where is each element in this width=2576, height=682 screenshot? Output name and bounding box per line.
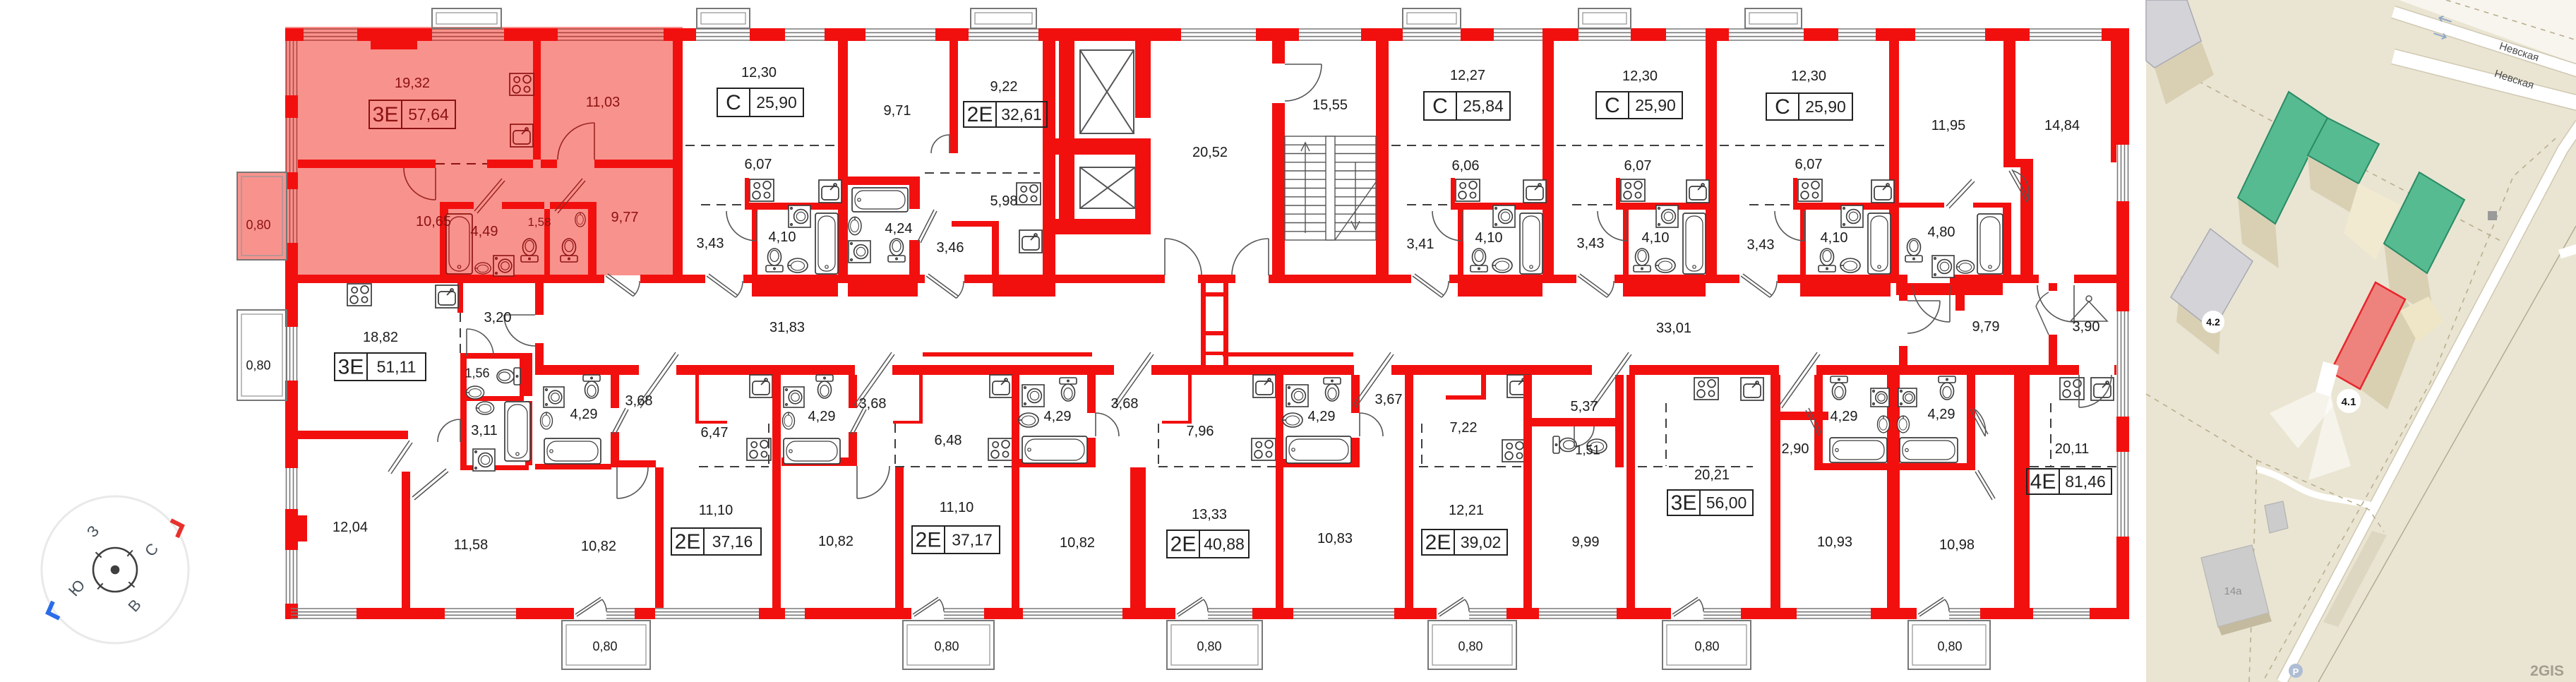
svg-text:4,29: 4,29: [1831, 409, 1858, 424]
svg-text:10,93: 10,93: [1817, 534, 1852, 550]
svg-text:56,00: 56,00: [1706, 493, 1747, 512]
svg-text:10,82: 10,82: [818, 534, 853, 549]
svg-text:20,52: 20,52: [1192, 145, 1228, 160]
svg-text:12,27: 12,27: [1450, 68, 1485, 83]
svg-text:5,98: 5,98: [990, 193, 1018, 209]
svg-text:4,49: 4,49: [471, 224, 498, 239]
svg-text:4,29: 4,29: [1308, 409, 1336, 424]
svg-text:0,80: 0,80: [1197, 639, 1221, 653]
svg-text:37,17: 37,17: [952, 531, 993, 549]
svg-text:18,82: 18,82: [363, 330, 398, 345]
svg-text:5,37: 5,37: [1571, 399, 1598, 414]
svg-text:39,02: 39,02: [1461, 533, 1502, 551]
svg-text:1,58: 1,58: [527, 215, 551, 229]
svg-text:11,58: 11,58: [454, 537, 489, 553]
svg-text:14,84: 14,84: [2044, 118, 2080, 133]
svg-text:С: С: [726, 91, 741, 114]
svg-text:0,80: 0,80: [592, 639, 617, 653]
svg-text:3,67: 3,67: [1375, 392, 1403, 407]
svg-text:9,99: 9,99: [1572, 534, 1600, 550]
svg-text:6,07: 6,07: [1795, 157, 1823, 172]
svg-text:25,90: 25,90: [1635, 96, 1676, 114]
svg-text:2Е: 2Е: [1425, 531, 1451, 554]
svg-text:3,90: 3,90: [2073, 319, 2100, 335]
svg-text:15,55: 15,55: [1312, 97, 1348, 113]
svg-text:20,11: 20,11: [2055, 441, 2090, 457]
svg-text:10,65: 10,65: [416, 214, 451, 229]
svg-text:3Е: 3Е: [338, 356, 364, 379]
svg-text:40,88: 40,88: [1204, 535, 1245, 554]
svg-text:С: С: [1775, 95, 1790, 119]
svg-text:4,29: 4,29: [570, 407, 598, 422]
svg-text:10,98: 10,98: [1939, 537, 1975, 553]
svg-text:4,80: 4,80: [1928, 225, 1955, 240]
svg-text:3Е: 3Е: [1671, 491, 1697, 515]
svg-text:19,32: 19,32: [395, 76, 430, 91]
svg-text:3,68: 3,68: [625, 393, 653, 409]
svg-text:3Е: 3Е: [373, 103, 399, 126]
svg-text:9,77: 9,77: [611, 210, 639, 225]
svg-text:С: С: [1605, 94, 1620, 117]
svg-text:1,51: 1,51: [1575, 443, 1600, 457]
svg-text:2Е: 2Е: [675, 530, 701, 554]
svg-text:0,80: 0,80: [1937, 639, 1962, 653]
svg-text:14а: 14а: [2224, 585, 2242, 597]
svg-text:0,80: 0,80: [1458, 639, 1482, 653]
svg-text:2GIS: 2GIS: [2530, 663, 2564, 679]
svg-text:4,10: 4,10: [769, 229, 796, 245]
svg-text:51,11: 51,11: [377, 358, 417, 376]
svg-text:4,29: 4,29: [1044, 409, 1072, 424]
svg-text:4.1: 4.1: [2342, 396, 2356, 408]
svg-text:3,68: 3,68: [859, 396, 887, 412]
svg-text:2Е: 2Е: [1170, 533, 1197, 556]
svg-text:P: P: [2293, 666, 2299, 677]
svg-text:6,07: 6,07: [1624, 158, 1652, 174]
svg-text:37,16: 37,16: [712, 532, 753, 551]
svg-text:2Е: 2Е: [967, 103, 993, 126]
svg-text:6,06: 6,06: [1452, 158, 1480, 174]
svg-text:4,10: 4,10: [1475, 230, 1503, 246]
svg-text:4.2: 4.2: [2206, 316, 2220, 328]
svg-text:57,64: 57,64: [408, 105, 449, 124]
svg-text:9,22: 9,22: [990, 79, 1018, 95]
svg-text:1,56: 1,56: [465, 366, 489, 380]
svg-text:4,24: 4,24: [885, 221, 913, 237]
svg-text:11,10: 11,10: [699, 503, 733, 518]
svg-text:10,83: 10,83: [1317, 531, 1353, 546]
svg-text:4,29: 4,29: [808, 409, 836, 424]
svg-text:6,47: 6,47: [701, 425, 729, 441]
svg-text:32,61: 32,61: [1001, 105, 1042, 124]
svg-text:20,21: 20,21: [1694, 467, 1730, 483]
svg-text:12,30: 12,30: [741, 65, 777, 80]
svg-text:81,46: 81,46: [2065, 472, 2106, 491]
svg-text:7,96: 7,96: [1187, 424, 1214, 439]
svg-text:0,80: 0,80: [934, 639, 959, 653]
svg-text:10,82: 10,82: [581, 539, 616, 554]
svg-text:12,30: 12,30: [1791, 68, 1826, 84]
svg-text:25,84: 25,84: [1463, 97, 1504, 115]
svg-text:3,43: 3,43: [697, 236, 724, 251]
svg-text:31,83: 31,83: [769, 320, 805, 335]
svg-text:4,10: 4,10: [1821, 230, 1848, 246]
svg-text:25,90: 25,90: [756, 93, 797, 112]
svg-text:6,07: 6,07: [745, 157, 772, 172]
svg-text:6,48: 6,48: [935, 433, 962, 448]
svg-text:С: С: [1432, 95, 1448, 118]
svg-text:4,29: 4,29: [1928, 407, 1955, 422]
svg-text:11,10: 11,10: [940, 500, 974, 515]
svg-text:9,71: 9,71: [884, 103, 911, 119]
svg-text:12,21: 12,21: [1449, 503, 1484, 518]
svg-text:3,41: 3,41: [1407, 237, 1434, 252]
svg-text:3,20: 3,20: [484, 310, 512, 325]
svg-text:7,22: 7,22: [1450, 420, 1478, 436]
svg-text:2Е: 2Е: [916, 529, 942, 552]
svg-text:25,90: 25,90: [1805, 97, 1846, 116]
svg-text:3,68: 3,68: [1111, 396, 1139, 412]
svg-text:0,80: 0,80: [246, 217, 270, 232]
svg-text:2,90: 2,90: [1782, 441, 1809, 457]
svg-text:0,80: 0,80: [1694, 639, 1719, 653]
svg-text:3,43: 3,43: [1577, 236, 1605, 251]
svg-text:33,01: 33,01: [1656, 321, 1691, 336]
svg-text:12,30: 12,30: [1622, 68, 1658, 84]
svg-text:4,10: 4,10: [1642, 230, 1670, 246]
svg-text:12,04: 12,04: [333, 520, 368, 535]
svg-text:11,03: 11,03: [586, 95, 621, 110]
svg-text:10,82: 10,82: [1060, 535, 1095, 551]
svg-text:13,33: 13,33: [1192, 507, 1227, 522]
svg-text:3,46: 3,46: [937, 240, 964, 256]
svg-text:3,11: 3,11: [471, 423, 497, 438]
svg-text:0,80: 0,80: [246, 358, 270, 372]
svg-text:3,43: 3,43: [1747, 237, 1775, 253]
svg-text:9,79: 9,79: [1972, 319, 2000, 335]
svg-text:11,95: 11,95: [1931, 118, 1966, 133]
svg-text:4Е: 4Е: [2030, 470, 2056, 493]
